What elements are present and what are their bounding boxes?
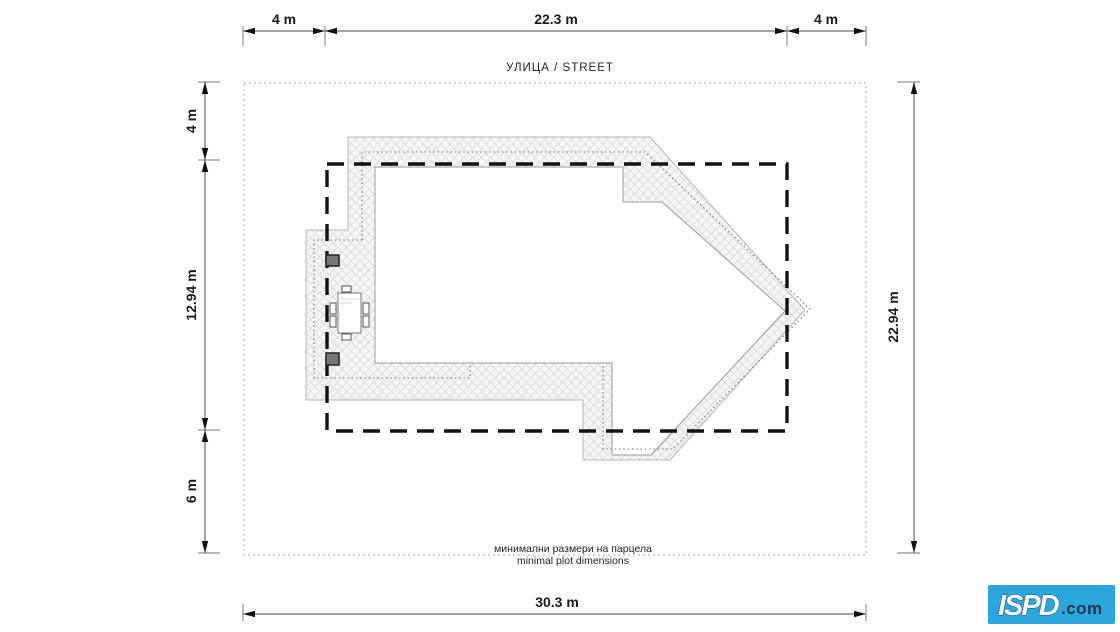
grill-bottom (326, 353, 339, 365)
dim-label-left-middle: 12.94 m (183, 269, 199, 320)
plot-note-line1: минимални размери на парцела (494, 543, 652, 555)
site-plan-page: 4 m 22.3 m 4 m 4 m 12.94 m 6 m 22.94 m (0, 0, 1120, 632)
dim-arrow (854, 28, 866, 34)
dim-label-bottom: 30.3 m (535, 594, 579, 610)
dimension-top: 4 m 22.3 m 4 m (243, 11, 866, 46)
dim-arrow (202, 418, 208, 430)
dim-arrow (313, 28, 325, 34)
street-label: УЛИЦА / STREET (506, 62, 614, 74)
dim-label-left-top: 4 m (183, 109, 199, 133)
dim-label-top-right: 4 m (814, 11, 838, 27)
grill-top (326, 255, 339, 266)
plot-note-line2: minimal plot dimensions (517, 555, 629, 567)
dim-label-top-left: 4 m (272, 11, 296, 27)
dim-arrow (202, 430, 208, 442)
logo-suffix-text: .com (1061, 599, 1103, 618)
logo-name-text: ISPD (998, 590, 1060, 622)
dim-label-left-bottom: 6 m (183, 479, 199, 503)
dimension-bottom: 30.3 m (243, 594, 866, 621)
dim-arrow (202, 160, 208, 172)
house-roof-plan (306, 137, 810, 460)
house-footprint (375, 167, 785, 455)
dim-arrow (202, 82, 208, 94)
dim-arrow (775, 28, 787, 34)
dim-label-right: 22.94 m (885, 291, 901, 342)
dim-arrow (911, 541, 917, 553)
dim-arrow (854, 611, 866, 617)
dim-arrow (202, 148, 208, 160)
dim-label-top-center: 22.3 m (534, 11, 578, 27)
dim-arrow (243, 611, 255, 617)
dim-arrow (325, 28, 337, 34)
dim-arrow (243, 28, 255, 34)
dim-arrow (911, 82, 917, 94)
site-plan-drawing: 4 m 22.3 m 4 m 4 m 12.94 m 6 m 22.94 m (0, 0, 1120, 632)
chair-top (342, 286, 351, 292)
dimension-right: 22.94 m (885, 82, 920, 553)
chair-right-1 (363, 303, 369, 314)
logo[interactable]: ISPD .com (988, 585, 1115, 624)
chair-right-2 (363, 316, 369, 327)
chair-left-2 (330, 316, 336, 327)
chair-bottom (342, 334, 351, 340)
dimension-left: 4 m 12.94 m 6 m (183, 82, 220, 553)
dim-arrow (202, 541, 208, 553)
chair-left-1 (330, 303, 336, 314)
dim-arrow (787, 28, 799, 34)
